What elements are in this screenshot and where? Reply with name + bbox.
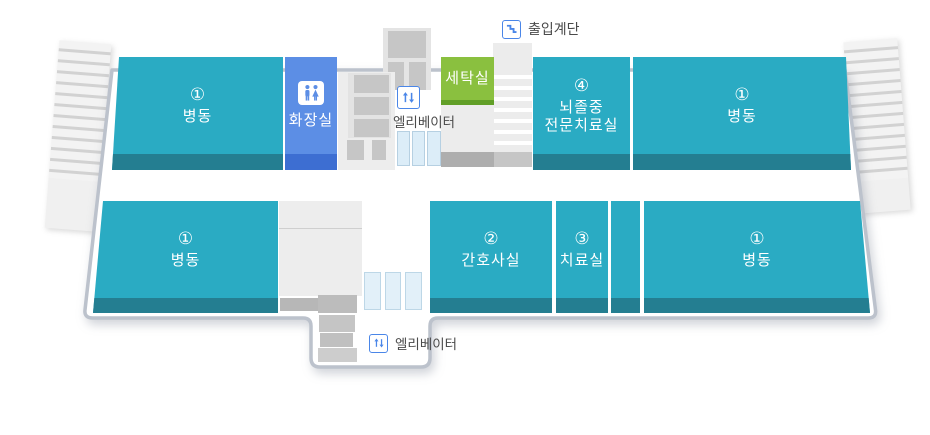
room-name: 간호사실 <box>461 252 520 270</box>
stairs-icon <box>502 20 521 39</box>
room-small-unlabeled <box>611 201 640 313</box>
room-ward-bottom-right: ① 병동 <box>644 201 870 313</box>
hospital-floor-plan: ① 병동 화장실 <box>0 0 930 435</box>
bottom-step-1 <box>318 295 357 313</box>
room-edge <box>611 298 640 313</box>
legend-elevator-bottom: 엘리베이터 <box>369 333 457 353</box>
top-entrance-block <box>388 31 426 58</box>
room-name: 화장실 <box>289 112 333 130</box>
legend-entry-stairs: 출입계단 <box>502 19 580 39</box>
elevator-arrows-icon <box>397 86 420 109</box>
elevator-top-door-3 <box>427 131 441 166</box>
elevator-top-door-2 <box>412 131 425 166</box>
room-restroom: 화장실 <box>285 57 337 170</box>
stairs-left-landing <box>45 178 101 232</box>
room-number: ① <box>749 229 764 248</box>
legend-entry-stairs-label: 출입계단 <box>528 19 580 39</box>
room-ward-top-right: ① 병동 <box>633 57 851 170</box>
room-name: 치료실 <box>560 252 604 270</box>
corridor-cabinet-2 <box>354 97 389 115</box>
elevator-top-door-1 <box>397 131 410 166</box>
elevator-bottom-door-3 <box>405 272 422 310</box>
bottom-step-4 <box>318 348 357 362</box>
room-number: ② <box>483 229 498 248</box>
room-laundry: 세탁실 <box>441 57 494 105</box>
wall-strip-laundry <box>441 152 494 167</box>
stairs-left-steps <box>49 40 112 182</box>
room-nurse-station: ② 간호사실 <box>430 201 552 313</box>
bottom-step-3 <box>320 333 353 347</box>
stairs-right-steps <box>843 38 908 182</box>
room-treatment: ③ 치료실 <box>556 201 608 313</box>
stairs-right <box>843 38 910 214</box>
legend-elevator-top-label: 엘리베이터 <box>393 111 455 131</box>
room-number: ① <box>178 229 193 248</box>
room-utility <box>279 201 362 296</box>
room-utility-divider <box>279 228 362 229</box>
stairs-left <box>45 40 112 232</box>
corridor-stool-right <box>372 140 386 160</box>
bottom-step-2 <box>319 315 355 332</box>
elevator-arrows-icon <box>369 334 388 353</box>
room-name: 병동 <box>727 108 757 126</box>
stairs-top-middle <box>493 43 532 152</box>
elevator-bottom-door-2 <box>385 272 401 310</box>
stairs-right-landing <box>854 178 910 214</box>
elevator-bottom-door-1 <box>364 272 381 310</box>
stairs-top-middle-landing <box>493 43 532 68</box>
room-number: ① <box>190 85 205 104</box>
restroom-icon <box>298 81 324 105</box>
wall-strip-stairs <box>494 152 532 167</box>
room-name: 병동 <box>742 252 772 270</box>
room-name: 병동 <box>171 252 201 270</box>
room-number: ④ <box>574 76 589 95</box>
wall-strip-bottom <box>280 298 318 311</box>
stairs-top-middle-steps <box>493 68 532 152</box>
room-number: ③ <box>574 229 589 248</box>
corridor-cabinet-1 <box>354 75 389 93</box>
room-stroke-unit: ④ 뇌졸중 전문치료실 <box>533 57 630 170</box>
room-name-line2: 전문치료실 <box>544 117 618 135</box>
room-name: 병동 <box>183 108 213 126</box>
room-ward-bottom-left: ① 병동 <box>93 201 278 313</box>
room-ward-top-left: ① 병동 <box>112 57 283 170</box>
legend-elevator-bottom-label: 엘리베이터 <box>395 333 457 353</box>
corridor-stool-left <box>347 140 364 160</box>
room-name: 세탁실 <box>445 70 489 88</box>
room-name-line1: 뇌졸중 <box>559 99 603 117</box>
room-number: ① <box>734 85 749 104</box>
corridor-cabinet-3 <box>354 119 389 137</box>
